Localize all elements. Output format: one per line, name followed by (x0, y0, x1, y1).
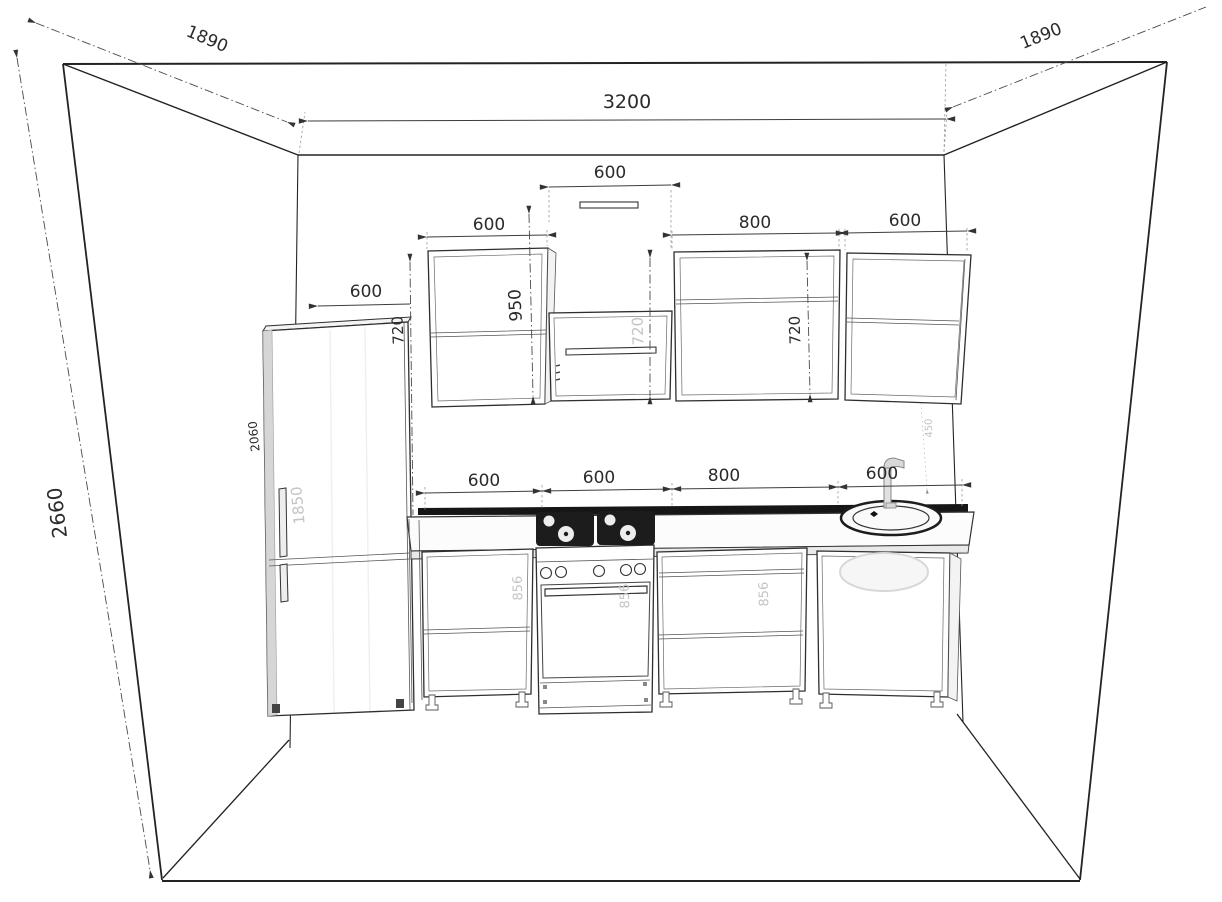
base-cabinet-left-600: 856 (422, 549, 533, 710)
dim-upper-left-width: 600 (473, 215, 505, 235)
dim-upper-left-height: 720 (388, 315, 407, 345)
fridge-handle-upper (279, 488, 287, 557)
dim-upper-right-width: 600 (889, 211, 921, 231)
hood-cabinet (549, 311, 672, 401)
fridge-foot (396, 699, 404, 708)
dim-upper-mid-width: 800 (739, 213, 771, 233)
dim-depth-left: 1890 (183, 22, 231, 57)
base-cabinet-mid-800: 856 (657, 548, 807, 707)
wall-cabinet-right-600 (845, 253, 971, 404)
fridge-height-label: 2060 (245, 420, 262, 452)
dimensions: 3200 1890 1890 2660 600 600 800 600 950 … (17, 7, 1206, 870)
sink-bowl-ghost (840, 553, 928, 591)
dim-room-height: 2660 (42, 486, 72, 539)
base-mid-height-label: 856 (757, 581, 773, 606)
dim-depth-right: 1890 (1017, 19, 1065, 54)
base-left-height-label: 856 (511, 575, 527, 600)
dim-apron-height: 450 (924, 418, 936, 437)
dim-base-mid-width: 800 (708, 466, 740, 486)
fridge-foot (272, 704, 280, 713)
dim-stove-width: 600 (583, 468, 615, 488)
dim-hood-cabinet-height: 720 (629, 317, 648, 346)
kitchen-drawing: 1850 2060 (0, 0, 1222, 902)
dim-upper-left-total-height: 950 (505, 289, 527, 322)
dim-base-left-width: 600 (468, 471, 500, 491)
fridge-door-height-label: 1850 (287, 486, 308, 526)
dim-sink-width: 600 (866, 464, 898, 484)
oven-door (541, 582, 650, 678)
dim-hood-gap: 600 (594, 163, 626, 183)
wall-cabinet-mid-800 (674, 250, 840, 401)
fridge-handle-lower (280, 564, 288, 602)
dim-fridge-width: 600 (350, 282, 382, 302)
sink-cabinet (817, 551, 961, 708)
stove-height-label: 856 (618, 583, 634, 608)
hood-cabinet-handle (566, 347, 656, 355)
dim-room-width: 3200 (603, 91, 651, 113)
wall-cabinet-left-600 (428, 248, 556, 407)
hood-vent (580, 202, 638, 208)
dim-upper-mid-height: 720 (786, 316, 805, 345)
drawing-canvas: 1850 2060 (0, 0, 1222, 902)
fridge: 1850 2060 (245, 317, 414, 716)
